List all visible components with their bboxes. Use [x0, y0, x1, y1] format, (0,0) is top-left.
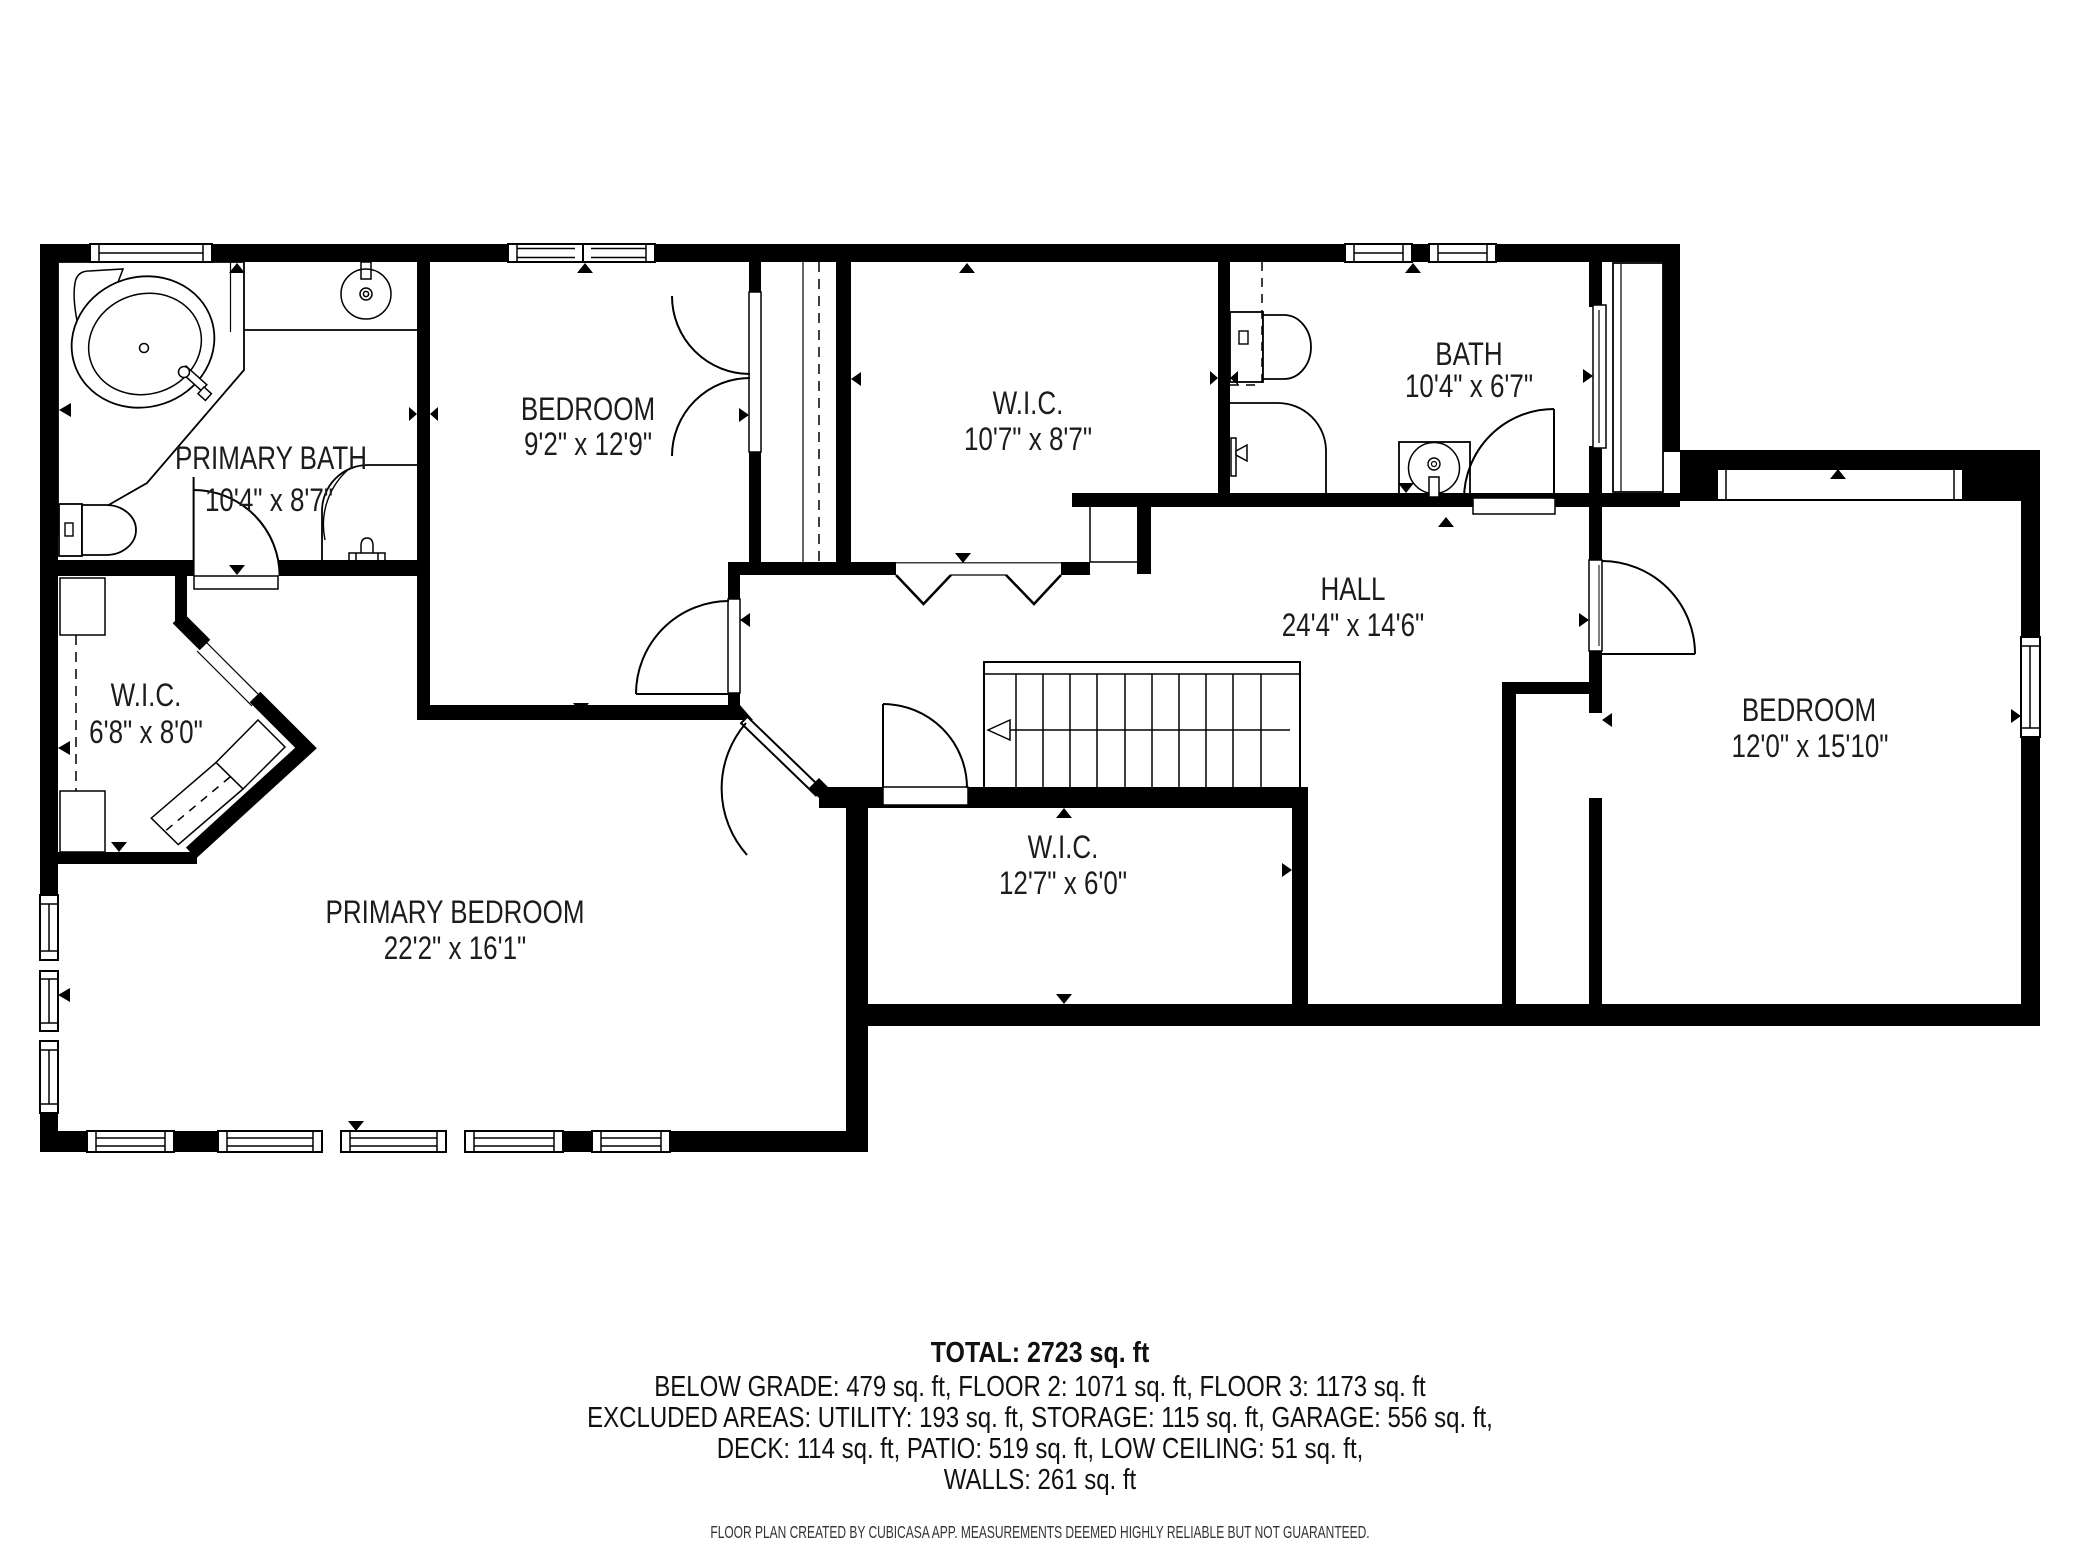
svg-text:FLOOR PLAN CREATED BY CUBICASA: FLOOR PLAN CREATED BY CUBICASA APP. MEAS…: [710, 1523, 1369, 1543]
svg-text:HALL: HALL: [1320, 571, 1385, 607]
svg-text:12'7" x 6'0": 12'7" x 6'0": [999, 865, 1127, 901]
svg-text:12'0" x 15'10": 12'0" x 15'10": [1731, 728, 1888, 764]
svg-text:PRIMARY BEDROOM: PRIMARY BEDROOM: [325, 894, 584, 930]
svg-text:W.I.C.: W.I.C.: [993, 385, 1064, 421]
svg-text:BEDROOM: BEDROOM: [521, 391, 655, 427]
svg-text:EXCLUDED AREAS: UTILITY: 193 s: EXCLUDED AREAS: UTILITY: 193 sq. ft, STO…: [587, 1401, 1493, 1433]
svg-text:9'2" x 12'9": 9'2" x 12'9": [524, 426, 652, 462]
svg-text:10'4" x 6'7": 10'4" x 6'7": [1405, 368, 1533, 404]
svg-text:DECK: 114 sq. ft, PATIO: 519 s: DECK: 114 sq. ft, PATIO: 519 sq. ft, LOW…: [717, 1432, 1364, 1464]
svg-text:BATH: BATH: [1435, 336, 1502, 372]
svg-text:W.I.C.: W.I.C.: [1028, 829, 1099, 865]
svg-text:10'7" x 8'7": 10'7" x 8'7": [964, 421, 1092, 457]
svg-text:TOTAL: 2723 sq. ft: TOTAL: 2723 sq. ft: [931, 1336, 1150, 1368]
svg-text:PRIMARY BATH: PRIMARY BATH: [175, 440, 367, 476]
svg-text:BELOW GRADE: 479 sq. ft, FLOOR: BELOW GRADE: 479 sq. ft, FLOOR 2: 1071 s…: [654, 1370, 1426, 1402]
svg-text:6'8" x 8'0": 6'8" x 8'0": [89, 714, 203, 750]
svg-text:W.I.C.: W.I.C.: [111, 677, 182, 713]
svg-text:10'4" x 8'7": 10'4" x 8'7": [205, 482, 333, 518]
svg-text:24'4" x 14'6": 24'4" x 14'6": [1282, 607, 1425, 643]
svg-text:BEDROOM: BEDROOM: [1742, 692, 1876, 728]
svg-text:WALLS: 261 sq. ft: WALLS: 261 sq. ft: [944, 1463, 1137, 1495]
svg-text:22'2" x 16'1": 22'2" x 16'1": [384, 930, 527, 966]
